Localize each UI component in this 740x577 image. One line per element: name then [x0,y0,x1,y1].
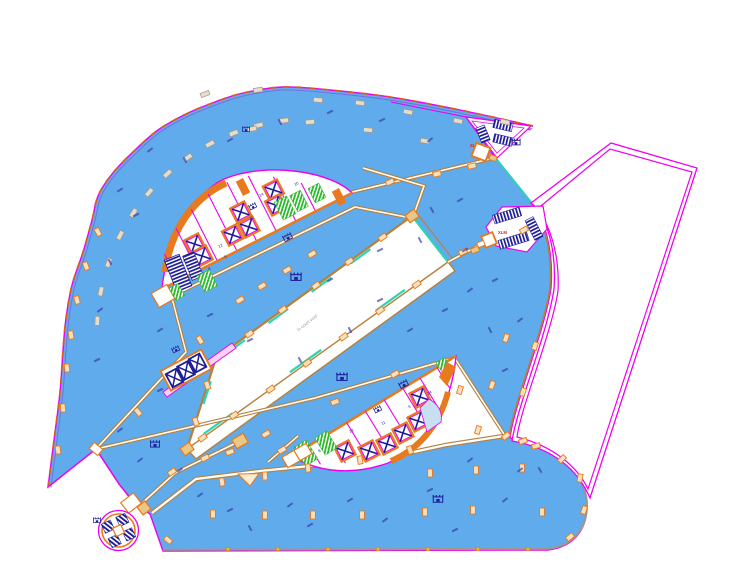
svg-text:XLM: XLM [498,230,507,235]
